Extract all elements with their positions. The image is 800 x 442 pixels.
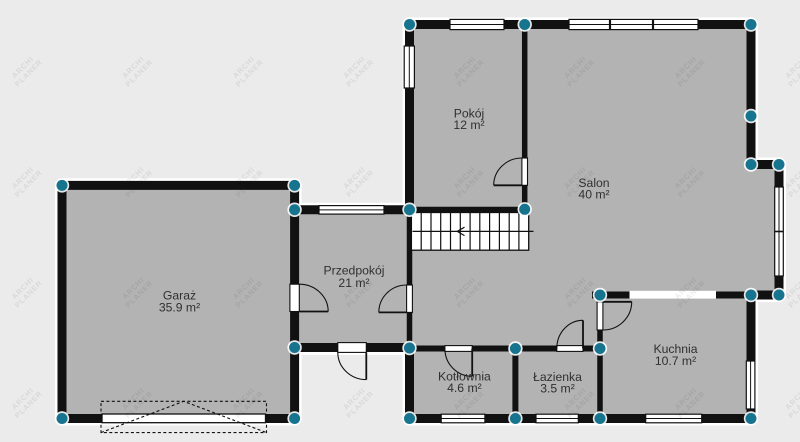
svg-text:35.9 m²: 35.9 m² <box>159 301 200 315</box>
svg-text:3.5 m²: 3.5 m² <box>540 382 575 396</box>
svg-text:10.7 m²: 10.7 m² <box>655 354 696 368</box>
svg-text:40 m²: 40 m² <box>578 188 609 202</box>
svg-text:12 m²: 12 m² <box>453 118 484 132</box>
